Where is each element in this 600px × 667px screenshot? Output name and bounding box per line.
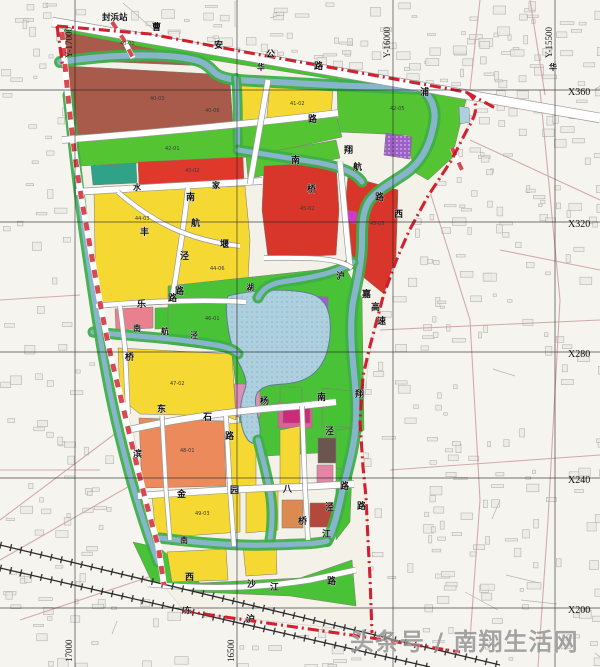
building-footprint [569, 203, 582, 210]
parcel-code: 47-02 [170, 381, 185, 387]
building-footprint [429, 536, 432, 543]
building-footprint [493, 6, 506, 14]
parcel-code: 48-01 [180, 448, 195, 454]
building-footprint [214, 25, 222, 28]
building-footprint [452, 83, 461, 86]
building-footprint [595, 589, 600, 596]
map-label: 安 [214, 39, 223, 51]
building-footprint [426, 58, 439, 65]
building-footprint [67, 513, 70, 517]
building-footprint [205, 5, 217, 7]
building-footprint [271, 34, 283, 36]
building-footprint [106, 456, 114, 464]
building-footprint [277, 12, 284, 15]
building-footprint [428, 33, 436, 35]
building-footprint [562, 365, 567, 372]
building-footprint [352, 658, 361, 660]
building-footprint [504, 440, 509, 447]
building-footprint [168, 612, 181, 620]
building-footprint [561, 51, 573, 56]
map-canvas: X360X320X280X240X200Y-170001700016500Y-1… [0, 0, 600, 667]
building-footprint [579, 22, 586, 25]
building-footprint [47, 617, 52, 621]
building-footprint [461, 513, 473, 520]
parcel-code: 44-06 [210, 266, 225, 272]
map-label: 路 [357, 500, 367, 512]
building-footprint [438, 537, 446, 540]
building-footprint [46, 4, 57, 6]
building-footprint [32, 242, 41, 250]
map-label: 航 [191, 217, 200, 229]
building-footprint [546, 218, 556, 222]
parcel-code: 43-02 [185, 168, 200, 174]
building-footprint [446, 472, 456, 476]
map-label: 航 [353, 161, 362, 173]
map-label: 八 [282, 484, 293, 495]
building-footprint [476, 109, 488, 112]
building-footprint [440, 306, 445, 308]
building-footprint [472, 191, 478, 197]
building-footprint [532, 470, 535, 473]
building-footprint [34, 49, 40, 56]
map-label: 翔 [343, 144, 353, 156]
building-footprint [378, 362, 383, 370]
building-footprint [35, 530, 43, 535]
building-footprint [574, 247, 584, 251]
map-label: 泾 [325, 501, 334, 513]
building-footprint [349, 62, 362, 69]
building-footprint [6, 592, 12, 599]
parcel-hatch-special-purple-hatch [384, 133, 412, 159]
building-footprint [375, 509, 382, 518]
building-footprint [519, 76, 526, 82]
building-footprint [34, 427, 45, 431]
building-footprint [58, 437, 63, 445]
map-label: 泾 [325, 425, 334, 437]
building-footprint [425, 512, 429, 516]
building-footprint [499, 121, 505, 127]
map-label: 泾 [180, 250, 189, 262]
building-footprint [423, 336, 435, 339]
grid-label-x: X320 [568, 219, 590, 230]
building-footprint [452, 338, 465, 342]
building-footprint [430, 48, 441, 55]
building-footprint [483, 500, 487, 508]
building-footprint [76, 663, 88, 667]
building-footprint [498, 27, 510, 35]
building-footprint [240, 646, 244, 650]
building-footprint [530, 65, 543, 68]
building-footprint [458, 149, 462, 156]
building-footprint [405, 418, 416, 423]
building-footprint [522, 605, 528, 610]
building-footprint [492, 485, 504, 488]
building-footprint [34, 76, 37, 78]
building-footprint [92, 488, 99, 492]
building-footprint [437, 596, 449, 603]
building-footprint [364, 459, 371, 467]
building-footprint [555, 186, 561, 190]
building-footprint [64, 442, 75, 447]
building-footprint [534, 195, 545, 198]
map-label: 滨 [133, 448, 142, 460]
grid-label-x: X360 [568, 87, 590, 98]
building-footprint [175, 657, 188, 665]
building-footprint [53, 278, 57, 284]
building-footprint [529, 2, 536, 11]
building-footprint [269, 645, 282, 650]
building-footprint [8, 419, 15, 423]
map-label: 速 [377, 315, 386, 327]
building-footprint [431, 527, 435, 532]
building-footprint [557, 32, 567, 38]
building-footprint [470, 17, 478, 21]
building-footprint [595, 11, 600, 20]
building-footprint [409, 64, 420, 70]
building-footprint [427, 259, 432, 263]
building-footprint [509, 109, 517, 116]
building-footprint [494, 72, 498, 81]
building-footprint [566, 255, 570, 263]
building-footprint [220, 15, 229, 21]
building-footprint [510, 50, 524, 56]
building-footprint [107, 507, 111, 511]
parcel-code: 49-03 [195, 511, 210, 517]
building-footprint [37, 306, 44, 313]
building-footprint [585, 158, 590, 165]
building-footprint [361, 41, 368, 46]
building-footprint [412, 16, 417, 18]
building-footprint [578, 82, 585, 86]
building-footprint [76, 10, 86, 15]
building-footprint [94, 507, 106, 510]
building-footprint [56, 531, 68, 538]
building-footprint [372, 52, 381, 60]
building-footprint [520, 588, 523, 591]
building-footprint [539, 204, 543, 207]
parcel-pink-br [317, 465, 333, 483]
building-footprint [323, 54, 337, 56]
building-footprint [444, 586, 456, 590]
building-footprint [334, 660, 347, 663]
building-footprint [460, 271, 473, 277]
building-footprint [516, 242, 522, 248]
map-label: 湖 [246, 282, 254, 292]
building-footprint [533, 563, 538, 568]
building-footprint [454, 385, 458, 389]
building-footprint [584, 63, 595, 67]
building-footprint [523, 530, 530, 538]
parcel-code: 42-05 [390, 106, 405, 112]
building-footprint [6, 518, 14, 521]
map-label: 南 [133, 323, 141, 333]
map-label: 沪 [246, 613, 255, 625]
building-footprint [479, 118, 489, 125]
parcel-residential-yellow-s3 [167, 549, 228, 582]
building-footprint [493, 294, 496, 297]
building-footprint [523, 319, 533, 325]
map-label: 家 [212, 180, 221, 190]
building-footprint [587, 523, 596, 531]
grid-label-y-bottom: 17000 [64, 639, 74, 662]
building-footprint [513, 48, 519, 50]
building-footprint [444, 205, 456, 207]
building-footprint [432, 549, 441, 552]
parcel-green-br-1 [280, 387, 302, 403]
building-footprint [404, 67, 409, 70]
building-footprint [332, 646, 343, 654]
building-footprint [68, 456, 74, 464]
building-footprint [415, 229, 419, 237]
building-footprint [496, 473, 504, 476]
parcel-green-br-2 [322, 388, 352, 427]
building-footprint [595, 515, 600, 523]
building-footprint [440, 521, 444, 529]
building-footprint [421, 346, 428, 350]
building-footprint [90, 363, 95, 366]
map-label: 桥 [307, 183, 317, 195]
map-label: 嘉 [361, 288, 371, 300]
building-footprint [495, 80, 503, 82]
building-footprint [488, 201, 493, 207]
building-footprint [440, 79, 447, 82]
building-footprint [480, 153, 484, 157]
building-footprint [23, 21, 27, 29]
grid-label-y-top: Y-15500 [544, 27, 554, 58]
building-footprint [480, 42, 490, 49]
map-label: 路 [168, 292, 178, 304]
building-footprint [447, 325, 451, 332]
parcel-code: 40-06 [205, 108, 220, 114]
building-footprint [3, 93, 12, 97]
building-footprint [47, 432, 54, 437]
building-footprint [2, 69, 11, 76]
map-label: 沙 [247, 579, 256, 590]
map-label: 丰 [140, 226, 149, 238]
building-footprint [372, 552, 383, 556]
building-footprint [434, 507, 444, 513]
parcel-code: 40-01 [120, 41, 135, 47]
map-label: 东 [184, 605, 192, 615]
building-footprint [562, 379, 574, 384]
building-footprint [482, 593, 492, 600]
building-footprint [382, 436, 395, 439]
building-footprint [25, 345, 35, 354]
building-footprint [575, 489, 584, 492]
building-footprint [370, 7, 380, 16]
parcel-industrial-dark-br [318, 438, 336, 463]
map-label: 高 [371, 301, 380, 313]
building-footprint [457, 177, 461, 182]
building-footprint [388, 576, 396, 578]
building-footprint [497, 207, 503, 216]
building-footprint [295, 14, 309, 17]
parcel-code: 42-01 [165, 146, 180, 152]
map-label: 南 [317, 391, 326, 403]
building-footprint [47, 381, 53, 387]
building-footprint [508, 35, 511, 40]
building-footprint [326, 3, 334, 6]
building-footprint [82, 552, 93, 555]
building-footprint [577, 100, 587, 103]
building-footprint [514, 548, 521, 557]
building-footprint [573, 139, 585, 143]
building-footprint [520, 14, 528, 20]
building-footprint [445, 449, 453, 452]
building-footprint [88, 492, 93, 496]
building-footprint [527, 484, 539, 492]
building-footprint [433, 260, 439, 264]
building-footprint [39, 598, 52, 601]
building-footprint [571, 29, 581, 32]
building-footprint [545, 333, 549, 337]
building-footprint [36, 374, 43, 380]
building-footprint [546, 347, 552, 356]
building-footprint [213, 36, 219, 39]
building-footprint [463, 59, 473, 66]
building-footprint [484, 73, 494, 76]
map-label: 南 [291, 154, 300, 166]
building-footprint [340, 42, 353, 44]
grid-label-y-top: Y-16000 [382, 27, 392, 58]
building-footprint [485, 537, 489, 545]
building-footprint [32, 161, 38, 164]
building-footprint [478, 332, 481, 338]
map-label: 华 [549, 62, 557, 72]
map-label: 路 [225, 430, 235, 442]
building-footprint [58, 118, 65, 125]
building-footprint [590, 642, 597, 646]
building-footprint [433, 332, 438, 338]
building-footprint [484, 325, 488, 332]
building-footprint [40, 498, 44, 502]
building-footprint [62, 322, 72, 326]
building-footprint [1, 382, 11, 388]
parcel-code: 40-03 [150, 96, 165, 102]
map-label: 乐 [137, 298, 146, 310]
building-footprint [493, 619, 503, 624]
parcel-code: 45-05 [370, 221, 385, 227]
building-footprint [36, 212, 47, 215]
building-footprint [554, 139, 566, 147]
building-footprint [509, 658, 513, 661]
building-footprint [5, 324, 15, 328]
building-footprint [441, 571, 454, 576]
map-label: 路 [340, 480, 350, 492]
building-footprint [546, 272, 551, 275]
building-footprint [543, 75, 557, 79]
building-footprint [596, 185, 600, 192]
building-footprint [246, 38, 256, 46]
building-footprint [452, 218, 466, 226]
building-footprint [365, 389, 371, 394]
building-footprint [556, 559, 561, 567]
building-footprint [508, 300, 512, 303]
building-footprint [10, 376, 21, 384]
building-footprint [26, 184, 33, 186]
building-footprint [252, 646, 258, 650]
building-footprint [593, 616, 600, 622]
map-label: 路 [375, 191, 385, 203]
building-footprint [456, 255, 465, 258]
map-label: 西 [394, 209, 403, 220]
building-footprint [21, 506, 33, 513]
map-label: 江 [322, 528, 331, 540]
building-footprint [593, 222, 598, 227]
map-label: 东 [157, 403, 166, 415]
building-footprint [471, 296, 482, 302]
building-footprint [453, 46, 466, 54]
building-footprint [428, 437, 438, 441]
grid-label-x: X280 [568, 349, 590, 360]
building-footprint [488, 442, 491, 447]
building-footprint [520, 429, 525, 437]
map-label: 沪 [336, 270, 345, 282]
building-footprint [421, 257, 428, 264]
map-label: 桥 [125, 351, 135, 363]
building-footprint [153, 619, 158, 627]
building-footprint [460, 205, 465, 208]
building-footprint [44, 13, 52, 19]
building-footprint [430, 496, 436, 502]
watermark: 头条号 / 南翔生活网 [350, 628, 578, 656]
building-footprint [29, 27, 35, 36]
parcel-pond-ne [459, 106, 470, 124]
building-footprint [92, 641, 98, 644]
building-footprint [541, 200, 545, 203]
building-footprint [519, 129, 526, 136]
building-footprint [80, 573, 85, 582]
map-label: 南 [180, 535, 188, 545]
map-label: 江 [270, 581, 279, 593]
building-footprint [556, 203, 560, 209]
building-footprint [29, 483, 33, 488]
building-footprint [49, 55, 53, 58]
building-footprint [594, 154, 600, 158]
building-footprint [342, 51, 351, 54]
building-footprint [279, 52, 284, 55]
building-footprint [143, 661, 152, 667]
building-footprint [292, 50, 298, 52]
map-label: 泾 [190, 330, 198, 340]
building-footprint [430, 214, 434, 220]
building-footprint [399, 385, 411, 393]
building-footprint [414, 405, 419, 409]
map-label: 金 [176, 488, 187, 500]
building-footprint [497, 225, 503, 233]
grid-label-x: X200 [568, 605, 590, 616]
building-footprint [63, 237, 70, 242]
building-footprint [527, 583, 541, 590]
grid-label-x: X240 [568, 475, 590, 486]
building-footprint [3, 227, 10, 231]
building-footprint [47, 151, 54, 155]
parcel-code: 46-01 [205, 316, 220, 322]
parcel-code: 41-02 [290, 101, 305, 107]
building-footprint [59, 345, 67, 351]
building-footprint [483, 273, 496, 281]
building-footprint [70, 391, 83, 395]
map-label: 西 [185, 572, 194, 583]
parcel-code: 44-03 [135, 216, 150, 222]
map-label: 曹 [152, 21, 161, 33]
map-label: 石 [202, 412, 212, 423]
grid-label-y-top: Y-17000 [64, 27, 74, 58]
map-label: 华 [257, 62, 265, 72]
building-footprint [594, 658, 600, 666]
building-footprint [580, 277, 592, 285]
building-footprint [54, 208, 67, 213]
